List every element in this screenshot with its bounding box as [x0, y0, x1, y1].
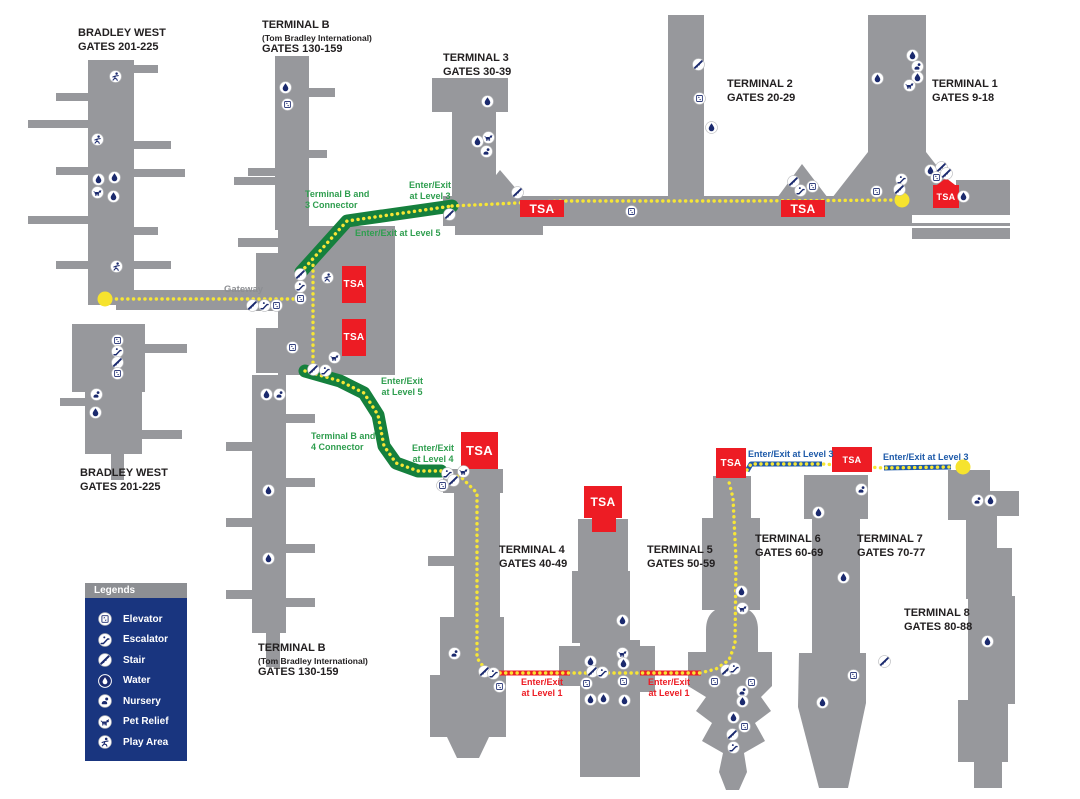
tsa-terminal-b-lower: TSA: [342, 319, 366, 356]
elevator-icon: [738, 720, 751, 733]
water-icon: [481, 95, 494, 108]
legend-item-label: Nursery: [112, 696, 161, 707]
water-icon: [735, 585, 748, 598]
water-icon: [92, 173, 105, 186]
water-icon: [837, 571, 850, 584]
play-area-icon: [110, 260, 123, 273]
lax-terminal-map: TSATSATSATSATSATSATSATSATSA BRADLEY WEST…: [0, 0, 1080, 799]
water-icon: [871, 72, 884, 85]
water-icon: [262, 484, 275, 497]
nursery-icon: [273, 388, 286, 401]
enter-exit-level1-a-label: Enter/Exitat Level 1: [521, 677, 563, 700]
stair-icon: [726, 728, 739, 741]
enter-exit-level1-b-label: Enter/Exitat Level 1: [648, 677, 690, 700]
stair-icon: [98, 653, 112, 667]
legend-item-label: Elevator: [112, 614, 162, 625]
escalator-icon: [487, 667, 500, 680]
escalator-icon: [319, 364, 332, 377]
terminal-6-label: TERMINAL 6GATES 60-69: [755, 533, 823, 561]
tsa-terminal-4: TSA: [461, 432, 498, 469]
elevator-icon: [436, 479, 449, 492]
stair-icon: [940, 167, 953, 180]
elevator-icon: [493, 680, 506, 693]
water-icon: [616, 614, 629, 627]
nursery-icon: [480, 145, 493, 158]
elevator-icon: [580, 677, 593, 690]
tsa-terminal-5: TSA: [584, 486, 622, 518]
water-icon: [279, 81, 292, 94]
terminal-8-label: TERMINAL 8GATES 80-88: [904, 607, 972, 635]
play-area-icon: [91, 133, 104, 146]
elevator-icon: [294, 292, 307, 305]
escalator-icon: [596, 666, 609, 679]
terminal-b-top-label: TERMINAL B(Tom Bradley International)GAT…: [262, 19, 372, 57]
nursery-icon: [90, 388, 103, 401]
terminal-4-label: TERMINAL 4GATES 40-49: [499, 544, 567, 572]
legend-item-label: Stair: [112, 655, 145, 666]
legend-item-escalator: Escalator: [85, 630, 187, 651]
legend-items: ElevatorEscalatorStairWaterNurseryPet Re…: [85, 598, 187, 753]
route-endpoint: [98, 292, 113, 307]
stair-icon: [878, 655, 891, 668]
legend-item-label: Escalator: [112, 634, 168, 645]
tsa-terminal-2: TSA: [781, 200, 825, 217]
tsa-terminal-5-stem: [592, 517, 616, 532]
bradley-west-top-label: BRADLEY WESTGATES 201-225: [78, 27, 166, 55]
nursery-icon: [98, 694, 112, 708]
enter-exit-level5-top-label: Enter/Exit at Level 5: [355, 228, 441, 239]
elevator-icon: [617, 675, 630, 688]
concourse-slot: [912, 215, 1010, 223]
elevator-icon: [847, 669, 860, 682]
gateway-label: Gateway: [224, 284, 263, 296]
legend-item-stair: Stair: [85, 650, 187, 671]
terminal-b-bottom-label: TERMINAL B(Tom Bradley International)GAT…: [258, 642, 368, 680]
legend-panel: Legends ElevatorEscalatorStairWaterNurse…: [85, 583, 187, 761]
water-icon: [736, 695, 749, 708]
elevator-icon: [708, 675, 721, 688]
elevator-icon: [281, 98, 294, 111]
nursery-icon: [855, 483, 868, 496]
elevator-icon: [625, 205, 638, 218]
water-icon: [816, 696, 829, 709]
play-area-icon: [321, 271, 334, 284]
pet-relief-icon: [98, 715, 112, 729]
nursery-icon: [448, 647, 461, 660]
enter-exit-level3-b-label: Enter/Exit at Level 3: [883, 452, 969, 463]
water-icon: [705, 121, 718, 134]
play-area-icon: [109, 70, 122, 83]
legend-item-nursery: Nursery: [85, 691, 187, 712]
play-area-icon: [98, 735, 112, 749]
stair-icon: [511, 186, 524, 199]
legend-title: Legends: [85, 583, 187, 598]
elevator-icon: [870, 185, 883, 198]
legend-item-label: Water: [112, 675, 150, 686]
escalator-icon: [98, 633, 112, 647]
terminal-3-label: TERMINAL 3GATES 30-39: [443, 52, 511, 80]
water-icon: [584, 693, 597, 706]
terminal-2-label: TERMINAL 2GATES 20-29: [727, 78, 795, 106]
enter-exit-level4-label: Enter/Exitat Level 4: [412, 443, 454, 466]
enter-exit-level5-mid-label: Enter/Exitat Level 5: [381, 376, 423, 399]
elevator-icon: [98, 612, 112, 626]
legend-item-play-area: Play Area: [85, 732, 187, 753]
legend-item-label: Pet Relief: [112, 716, 169, 727]
pet-relief-icon: [328, 351, 341, 364]
tsa-terminal-b-upper: TSA: [342, 266, 366, 303]
tsa-terminal-3: TSA: [520, 200, 564, 217]
connector-b4-label: Terminal B and4 Connector: [311, 431, 375, 454]
elevator-icon: [111, 367, 124, 380]
terminal-1-label: TERMINAL 1GATES 9-18: [932, 78, 998, 106]
enter-exit-level3-top-label: Enter/Exitat Level 3: [409, 180, 451, 203]
water-icon: [98, 674, 112, 688]
legend-item-elevator: Elevator: [85, 609, 187, 630]
water-icon: [89, 406, 102, 419]
elevator-icon: [286, 341, 299, 354]
water-icon: [617, 657, 630, 670]
legend-item-label: Play Area: [112, 737, 168, 748]
enter-exit-level3-a-label: Enter/Exit at Level 3: [748, 449, 834, 460]
nursery-icon: [971, 494, 984, 507]
terminal-5-label: TERMINAL 5GATES 50-59: [647, 544, 715, 572]
elevator-icon: [270, 299, 283, 312]
pet-relief-icon: [457, 465, 470, 478]
tsa-terminal-1: TSA: [933, 185, 959, 208]
water-icon: [981, 635, 994, 648]
water-icon: [108, 171, 121, 184]
water-icon: [260, 388, 273, 401]
tsa-terminal-7: TSA: [832, 447, 872, 472]
water-icon: [597, 692, 610, 705]
pet-relief-icon: [91, 186, 104, 199]
water-icon: [618, 694, 631, 707]
elevator-icon: [806, 180, 819, 193]
pet-relief-icon: [903, 79, 916, 92]
bradley-west-bottom-label: BRADLEY WESTGATES 201-225: [80, 467, 168, 495]
pet-relief-icon: [736, 602, 749, 615]
water-icon: [957, 190, 970, 203]
escalator-icon: [727, 741, 740, 754]
water-icon: [107, 190, 120, 203]
stair-icon: [443, 208, 456, 221]
tsa-terminal-6: TSA: [716, 448, 746, 478]
water-icon: [984, 494, 997, 507]
legend-item-pet-relief: Pet Relief: [85, 712, 187, 733]
stair-icon: [893, 183, 906, 196]
water-icon: [812, 506, 825, 519]
escalator-icon: [728, 662, 741, 675]
legend-item-water: Water: [85, 671, 187, 692]
elevator-icon: [693, 92, 706, 105]
connector-b3-label: Terminal B and3 Connector: [305, 189, 369, 212]
water-icon: [262, 552, 275, 565]
terminal-7-label: TERMINAL 7GATES 70-77: [857, 533, 925, 561]
stair-icon: [692, 58, 705, 71]
